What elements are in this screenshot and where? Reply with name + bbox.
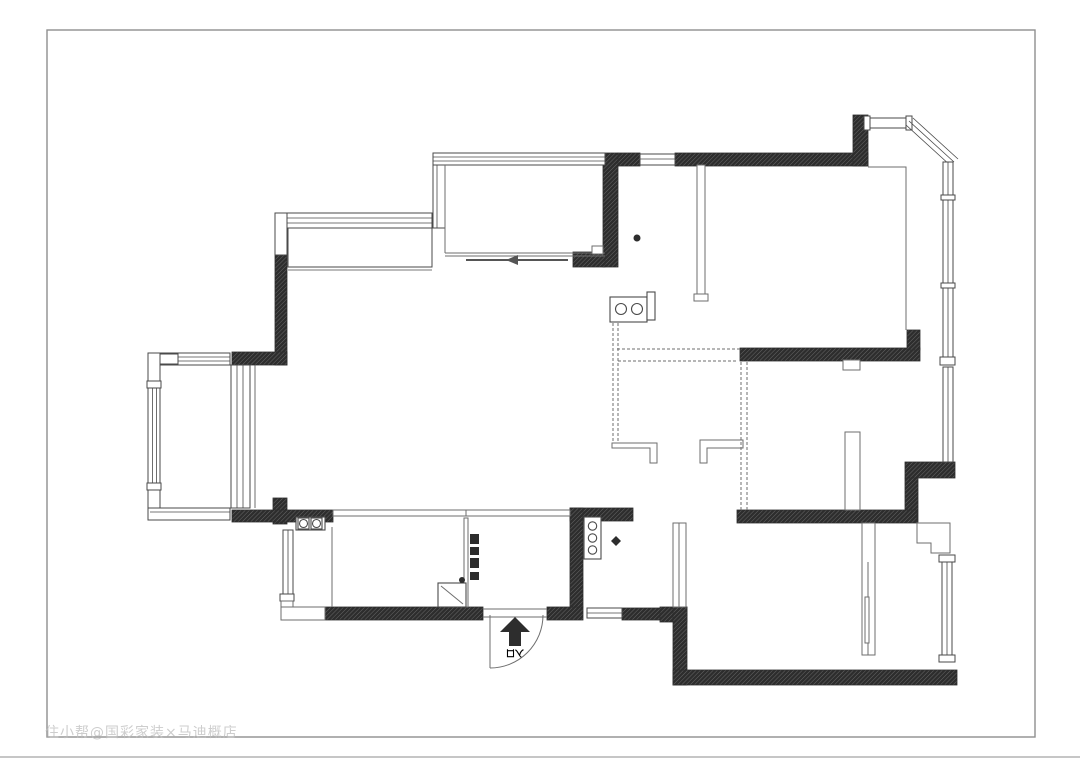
wall-segment [232, 352, 287, 365]
sliding-panel [865, 597, 869, 643]
double-basin-vanity [610, 292, 655, 322]
wall-segment [905, 462, 955, 478]
window-tick [941, 283, 955, 288]
window [275, 213, 432, 228]
wall-segment [737, 510, 917, 523]
partition [697, 165, 705, 297]
watermark-text: 住小帮@国彩家装×马迪概店 [45, 722, 238, 742]
partition [612, 443, 657, 463]
wall-segment [325, 607, 483, 620]
wall-segment [907, 330, 920, 350]
window-panel [288, 228, 432, 267]
wall-segment [740, 348, 920, 361]
window-cap [939, 655, 955, 662]
window-cap [864, 116, 870, 130]
two-burner-hob [296, 517, 325, 530]
window-cap [147, 483, 161, 490]
inner-wall-line [868, 167, 906, 330]
entrance-marker: 入口 [500, 617, 530, 658]
sliding-window [231, 365, 250, 508]
partition [281, 607, 325, 620]
partition [700, 440, 743, 463]
wall-segment [618, 153, 640, 166]
three-burner-stove [584, 517, 601, 559]
window [148, 353, 160, 518]
window [433, 165, 445, 228]
window [148, 508, 230, 520]
exterior-walls [232, 115, 957, 685]
floor-plan-page: 入口 住小帮@国彩家装×马迪概店 [0, 0, 1080, 763]
small-fixture-marks [470, 534, 479, 580]
partition-cap [694, 294, 708, 301]
wall-segment [673, 670, 957, 685]
window-tick [941, 195, 955, 200]
window [275, 213, 287, 255]
bay-window [868, 118, 910, 128]
diamond-marker [611, 536, 621, 546]
window-cap [147, 381, 161, 388]
entrance-arrow-icon [500, 617, 530, 646]
wall-segment [547, 607, 583, 620]
partition [333, 510, 466, 516]
wall-segment [603, 153, 618, 267]
wall-segment [570, 508, 583, 607]
entrance-label: 入口 [506, 647, 525, 658]
floor-drain-dot [459, 577, 465, 583]
window [433, 153, 605, 165]
floor-drain-dot [634, 235, 641, 242]
partition [466, 510, 570, 516]
fixtures [296, 235, 655, 608]
window-cap [940, 357, 955, 365]
window [640, 154, 675, 165]
wall-segment [275, 253, 287, 365]
duct-pillar [845, 432, 860, 510]
windows [147, 116, 958, 662]
door-handle [592, 246, 603, 254]
nook-outline [917, 523, 950, 553]
window-cap [280, 594, 294, 601]
wall-segment [675, 153, 868, 166]
wall-notch [843, 360, 860, 370]
floor-plan-drawing: 入口 [0, 0, 1080, 763]
window-cap [939, 555, 955, 562]
shoe-cabinet [438, 583, 466, 607]
